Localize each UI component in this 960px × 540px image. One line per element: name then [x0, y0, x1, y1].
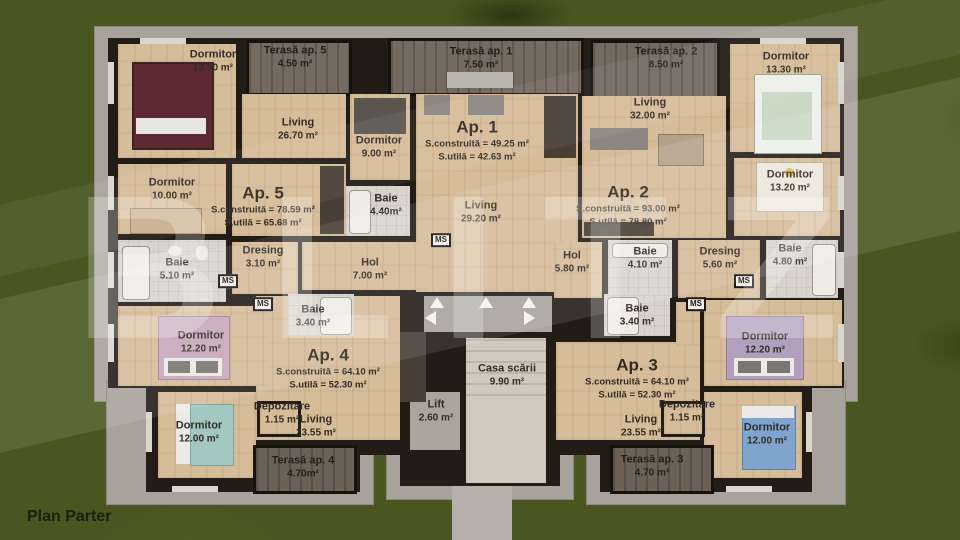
room-label-dormitor-ap4-low: Dormitor 12.00 m² — [176, 418, 222, 445]
room-label-baie-ap1: Baie 4.40m² — [370, 191, 402, 218]
terrace-label-ap3: Terasă ap. 3 4.70 m² — [621, 452, 684, 479]
ms-tag: MS — [686, 297, 706, 311]
room-name: Dresing — [243, 243, 284, 257]
apartment-usable-area: S.utilă = 42.63 m² — [425, 151, 529, 165]
room-label-baie-ap2-en: Baie 4.80 m² — [773, 241, 807, 268]
room-label-hol-ap2: Hol 5.80 m² — [555, 248, 589, 275]
terrace-name: Terasă ap. 4 — [272, 453, 335, 467]
room-name: Hol — [353, 255, 387, 269]
room-area: 5.10 m² — [160, 270, 194, 283]
entrance-arrow-icon — [425, 311, 436, 325]
window — [838, 324, 844, 362]
entrance-arrow-icon — [479, 297, 493, 308]
terrace-area: 8.50 m² — [635, 59, 698, 72]
room-name: Dormitor — [190, 47, 236, 61]
terrace-label-ap2: Terasă ap. 2 8.50 m² — [635, 44, 698, 71]
apartment-title: Ap. 3 — [585, 355, 689, 375]
window — [108, 176, 114, 210]
room-label-hol-ap4: Hol 7.00 m² — [353, 255, 387, 282]
room-area: 2.60 m² — [419, 412, 453, 425]
room-area: 5.80 m² — [555, 263, 589, 276]
room-area: 32.00 m² — [630, 110, 670, 123]
room-label-baie-ap5: Baie 5.10 m² — [160, 255, 194, 282]
table — [424, 95, 450, 115]
room-name: Baie — [773, 241, 807, 255]
room-name: Dormitor — [356, 133, 402, 147]
entrance-arrow-icon — [430, 297, 444, 308]
toilet — [196, 246, 208, 260]
room-label-dresing-ap5: Dresing 3.10 m² — [243, 243, 284, 270]
terrace-area: 4.70m² — [272, 468, 335, 481]
terrace-name: Terasă ap. 5 — [264, 43, 327, 57]
room-label-dresing-ap2: Dresing 5.60 m² — [700, 244, 741, 271]
bathtub — [812, 244, 836, 296]
room-area: 10.00 m² — [149, 190, 195, 203]
bathtub — [122, 246, 150, 300]
window — [146, 412, 152, 452]
room-area: 13.30 m² — [763, 64, 809, 77]
apartment-label-ap4: Ap. 4 S.construită = 64.10 m² S.utilă = … — [276, 345, 380, 392]
entry-walkway — [452, 486, 512, 540]
kitchen-counter-ap5 — [320, 166, 344, 234]
apartment-built-area: S.construită = 64.10 m² — [585, 375, 689, 389]
ms-tag: MS — [734, 274, 754, 288]
window — [108, 62, 114, 104]
plan-title: Plan Parter — [27, 508, 111, 526]
room-label-dormitor-ap5-mid: Dormitor 10.00 m² — [149, 175, 195, 202]
apartment-usable-area: S.utilă = 78.80 m² — [576, 216, 680, 230]
sofa — [590, 128, 648, 150]
room-area: 9.00 m² — [356, 148, 402, 161]
apartment-title: Ap. 4 — [276, 345, 380, 365]
terrace-area: 7.50 m² — [450, 59, 513, 72]
sofa — [130, 208, 202, 234]
room-area: 4.40m² — [370, 206, 402, 219]
ms-tag: MS — [218, 274, 238, 288]
doormat — [447, 72, 513, 88]
floor-plan-image: Dormitor 13.50 m² Terasă ap. 5 4.50 m² T… — [0, 0, 960, 540]
pillow — [738, 361, 761, 373]
apartment-label-ap5: Ap. 5 S.construită = 78.59 m² S.utilă = … — [211, 183, 315, 230]
room-label-dormitor-ap5-top: Dormitor 13.50 m² — [190, 47, 236, 74]
kitchen-counter-ap4 — [400, 332, 426, 402]
room-area: 23.55 m² — [296, 427, 336, 440]
room-name: Dormitor — [149, 175, 195, 189]
window — [172, 486, 218, 492]
room-name: Dormitor — [767, 167, 813, 181]
apartment-built-area: S.construită = 49.25 m² — [425, 137, 529, 151]
room-name: Lift — [419, 397, 453, 411]
room-area: 7.00 m² — [353, 270, 387, 283]
room-name: Living — [278, 115, 318, 129]
ms-tag: MS — [431, 233, 451, 247]
room-area: 4.80 m² — [773, 256, 807, 269]
apartment-usable-area: S.utilă = 65.68 m² — [211, 217, 315, 231]
apartment-built-area: S.construită = 78.59 m² — [211, 203, 315, 217]
room-label-living-ap1: Living 29.20 m² — [461, 198, 501, 225]
room-area: 12.00 m² — [744, 435, 790, 448]
room-label-baie-ap3: Baie 3.40 m² — [620, 301, 654, 328]
apartment-label-ap3: Ap. 3 S.construită = 64.10 m² S.utilă = … — [585, 355, 689, 402]
room-name: Dormitor — [744, 420, 790, 434]
ms-tag: MS — [253, 297, 273, 311]
room-area: 13.50 m² — [190, 62, 236, 75]
room-label-dormitor-ap3-mid: Dormitor 12.20 m² — [742, 329, 788, 356]
room-area: 3.40 m² — [620, 316, 654, 329]
room-name: Hol — [555, 248, 589, 262]
room-label-dormitor-ap3-low: Dormitor 12.00 m² — [744, 420, 790, 447]
apartment-built-area: S.construită = 93.00 m² — [576, 202, 680, 216]
room-area: 26.70 m² — [278, 130, 318, 143]
room-label-living-ap5: Living 26.70 m² — [278, 115, 318, 142]
pillow — [168, 361, 190, 373]
room-name: Baie — [296, 302, 330, 316]
room-name: Dormitor — [176, 418, 222, 432]
apartment-title: Ap. 2 — [576, 182, 680, 202]
window — [838, 252, 844, 288]
room-area: 12.00 m² — [176, 433, 222, 446]
terrace-label-ap5: Terasă ap. 5 4.50 m² — [264, 43, 327, 70]
room-name: Baie — [370, 191, 402, 205]
window — [108, 252, 114, 288]
room-label-baie-ap4: Baie 3.40 m² — [296, 302, 330, 329]
room-label-baie-ap2: Baie 4.10 m² — [628, 244, 662, 271]
terrace-area: 4.50 m² — [264, 58, 327, 71]
apartment-usable-area: S.utilă = 52.30 m² — [276, 379, 380, 393]
entrance-arrow-icon — [524, 311, 535, 325]
room-area: 3.10 m² — [243, 258, 284, 271]
room-area: 9.90 m² — [478, 376, 536, 389]
entrance-arrow-icon — [522, 297, 536, 308]
room-name: Dresing — [700, 244, 741, 258]
pillow — [196, 361, 218, 373]
room-area: 13.20 m² — [767, 182, 813, 195]
bed — [354, 98, 406, 134]
apartment-label-ap1: Ap. 1 S.construită = 49.25 m² S.utilă = … — [425, 117, 529, 164]
bed-pillows — [742, 406, 794, 418]
terrace-name: Terasă ap. 3 — [621, 452, 684, 466]
room-name: Dormitor — [763, 49, 809, 63]
sofa — [468, 95, 504, 115]
room-name: Living — [630, 95, 670, 109]
room-label-casa-scarii: Casa scării 9.90 m² — [478, 361, 536, 388]
room-area: 29.20 m² — [461, 213, 501, 226]
window — [806, 412, 812, 452]
room-label-dormitor-ap4-mid: Dormitor 12.20 m² — [178, 328, 224, 355]
room-area: 12.20 m² — [742, 344, 788, 357]
room-label-living-ap4: Living 23.55 m² — [296, 412, 336, 439]
table — [658, 134, 704, 166]
terrace-area: 4.70 m² — [621, 467, 684, 480]
room-label-depozitare-ap3: Depozitare 1.15 m² — [659, 397, 715, 424]
bed-blanket — [762, 92, 812, 140]
terrace-label-ap4: Terasă ap. 4 4.70m² — [272, 453, 335, 480]
room-name: Living — [461, 198, 501, 212]
room-label-dormitor-ap2-mid: Dormitor 13.20 m² — [767, 167, 813, 194]
room-name: Baie — [620, 301, 654, 315]
room-label-living-ap2: Living 32.00 m² — [630, 95, 670, 122]
room-casa-scarii — [466, 338, 546, 483]
bed — [132, 62, 214, 150]
room-name: Casa scării — [478, 361, 536, 375]
room-area: 3.40 m² — [296, 317, 330, 330]
room-area: 23.55 m² — [621, 427, 661, 440]
terrace-label-ap1: Terasă ap. 1 7.50 m² — [450, 44, 513, 71]
apartment-built-area: S.construită = 64.10 m² — [276, 365, 380, 379]
window — [140, 38, 186, 44]
bed-pillows — [136, 118, 206, 134]
apartment-label-ap2: Ap. 2 S.construită = 93.00 m² S.utilă = … — [576, 182, 680, 229]
terrace-name: Terasă ap. 1 — [450, 44, 513, 58]
room-name: Baie — [628, 244, 662, 258]
room-label-dormitor-ap2-top: Dormitor 13.30 m² — [763, 49, 809, 76]
room-area: 12.20 m² — [178, 343, 224, 356]
window — [726, 486, 772, 492]
terrace-name: Terasă ap. 2 — [635, 44, 698, 58]
room-label-lift: Lift 2.60 m² — [419, 397, 453, 424]
room-name: Depozitare — [659, 397, 715, 411]
window — [108, 324, 114, 362]
room-name: Dormitor — [178, 328, 224, 342]
room-label-dormitor-ap1: Dormitor 9.00 m² — [356, 133, 402, 160]
kitchen-counter-ap1 — [544, 96, 576, 158]
window — [838, 176, 844, 210]
room-label-living-ap3: Living 23.55 m² — [621, 412, 661, 439]
room-name: Baie — [160, 255, 194, 269]
room-name: Living — [621, 412, 661, 426]
room-area: 4.10 m² — [628, 259, 662, 272]
window — [838, 62, 844, 104]
apartment-title: Ap. 1 — [425, 117, 529, 137]
window — [760, 38, 806, 44]
pillow — [767, 361, 790, 373]
room-name: Living — [296, 412, 336, 426]
room-area: 1.15 m² — [659, 412, 715, 425]
bathtub — [349, 190, 371, 234]
room-area: 5.60 m² — [700, 259, 741, 272]
apartment-title: Ap. 5 — [211, 183, 315, 203]
room-name: Dormitor — [742, 329, 788, 343]
